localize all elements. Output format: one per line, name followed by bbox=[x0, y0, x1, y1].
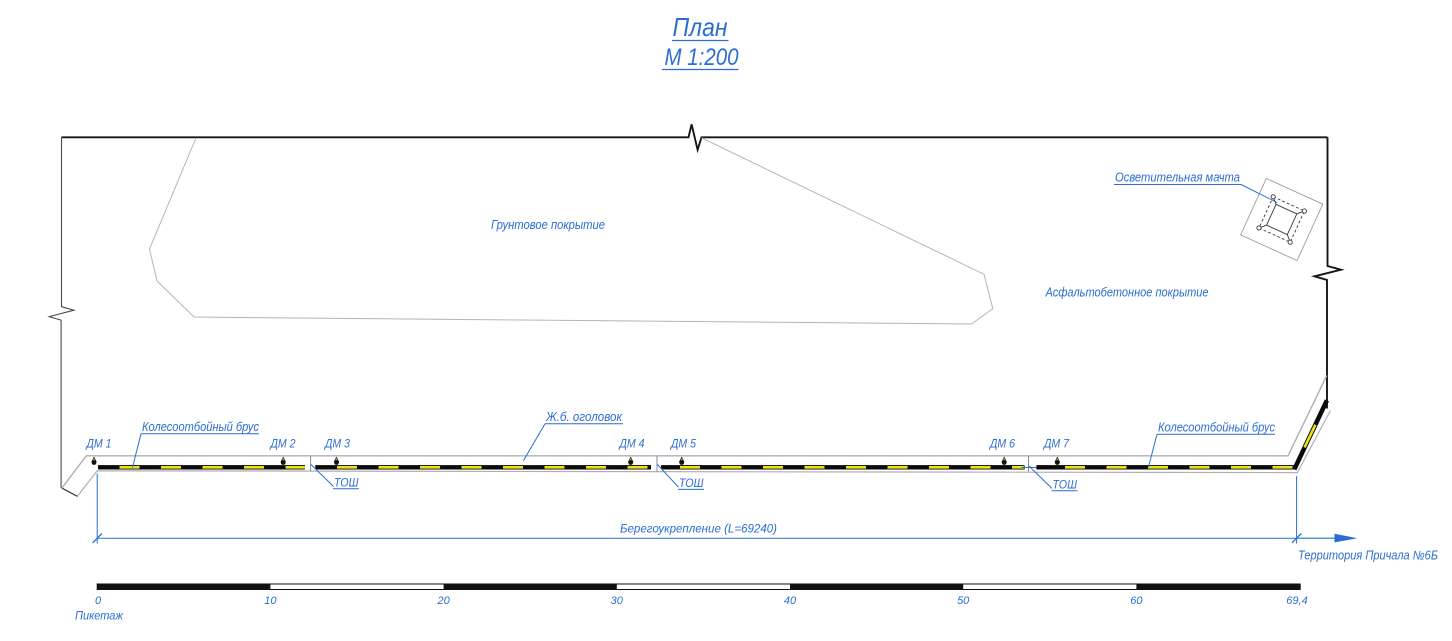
svg-text:20: 20 bbox=[436, 595, 450, 607]
svg-text:Пикетаж: Пикетаж bbox=[75, 611, 124, 623]
svg-text:Асфальтобетонное покрытие: Асфальтобетонное покрытие bbox=[1045, 286, 1209, 300]
svg-text:0: 0 bbox=[95, 595, 102, 607]
svg-text:50: 50 bbox=[957, 595, 970, 607]
svg-text:М 1:200: М 1:200 bbox=[665, 44, 740, 71]
svg-text:Колесоотбойный брус: Колесоотбойный брус bbox=[1158, 421, 1276, 435]
svg-text:ДМ 5: ДМ 5 bbox=[669, 439, 696, 451]
svg-text:ТОШ: ТОШ bbox=[1053, 480, 1078, 492]
svg-text:ТОШ: ТОШ bbox=[679, 478, 704, 490]
svg-text:ДМ 1: ДМ 1 bbox=[85, 439, 112, 451]
svg-text:Территория Причала №6Б: Территория Причала №6Б bbox=[1298, 548, 1438, 562]
svg-text:ДМ 4: ДМ 4 bbox=[618, 439, 645, 451]
svg-text:60: 60 bbox=[1130, 595, 1143, 607]
svg-text:10: 10 bbox=[264, 595, 277, 607]
svg-text:40: 40 bbox=[784, 595, 797, 607]
svg-text:План: План bbox=[673, 12, 728, 42]
svg-text:Берегоукрепление (L=69240): Берегоукрепление (L=69240) bbox=[620, 522, 777, 536]
svg-text:30: 30 bbox=[611, 595, 624, 607]
svg-text:Осветительная мачта: Осветительная мачта bbox=[1115, 171, 1240, 185]
svg-text:Ж.б. оголовок: Ж.б. оголовок bbox=[545, 410, 623, 424]
svg-text:Грунтовое покрытие: Грунтовое покрытие bbox=[491, 218, 605, 232]
svg-text:69,4: 69,4 bbox=[1286, 595, 1307, 607]
svg-text:ДМ 7: ДМ 7 bbox=[1042, 439, 1069, 451]
svg-text:ДМ 6: ДМ 6 bbox=[988, 439, 1015, 451]
svg-text:ДМ 3: ДМ 3 bbox=[323, 439, 350, 451]
svg-text:Колесоотбойный брус: Колесоотбойный брус bbox=[142, 420, 260, 434]
svg-text:ТОШ: ТОШ bbox=[334, 478, 359, 490]
svg-text:ДМ 2: ДМ 2 bbox=[269, 439, 296, 451]
